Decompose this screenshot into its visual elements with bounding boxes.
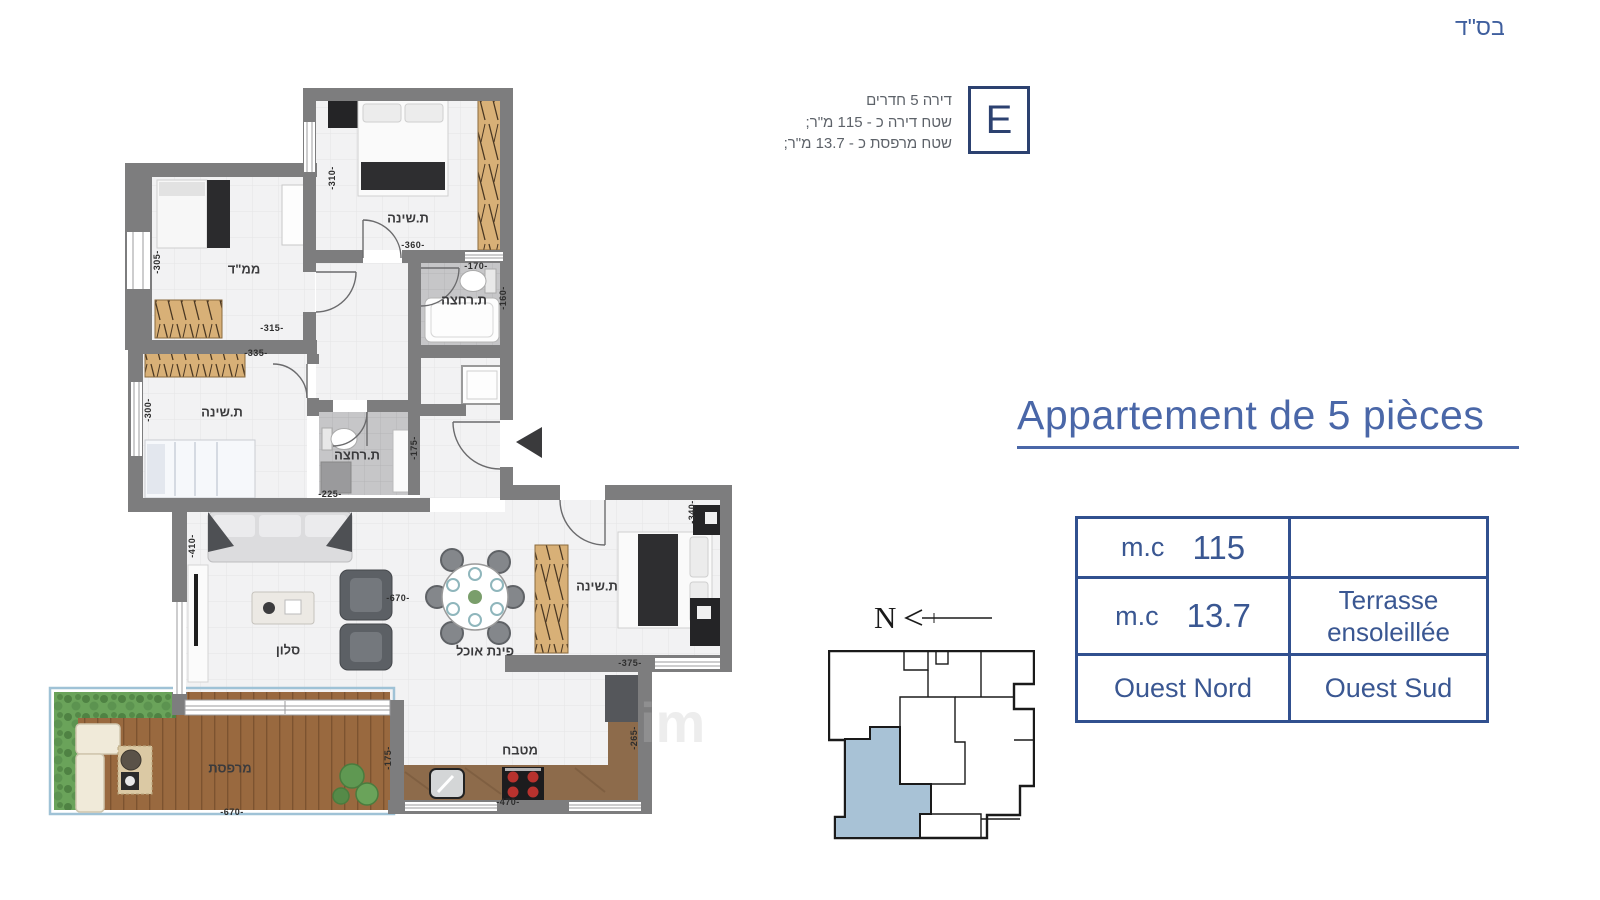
- dim-300: -300-: [143, 398, 153, 422]
- dim-470: -470-: [496, 797, 520, 807]
- building-minimap: [828, 650, 1035, 840]
- dim-340: -340-: [687, 500, 697, 524]
- table-cell-terrace-label: Terrasse ensoleillée: [1291, 579, 1486, 656]
- closet-bedroom2: [145, 352, 245, 377]
- closet-bedroom3: [535, 545, 568, 653]
- coffee-table: [252, 592, 314, 624]
- label-living: סלון: [276, 643, 300, 658]
- dim-410: -410-: [187, 534, 197, 558]
- label-bathroom1: ת.רחצה: [441, 293, 487, 308]
- sink-bathroom2: [393, 430, 410, 492]
- dim-670-living: -670-: [386, 593, 410, 603]
- dim-310: -310-: [327, 166, 337, 190]
- dim-225: -225-: [318, 489, 342, 499]
- sliding-door-terrace: [185, 700, 390, 715]
- dim-160: -160-: [498, 286, 508, 310]
- nightstand-lamp2: [697, 606, 711, 619]
- north-label: N: [874, 600, 896, 636]
- armchairs: [340, 570, 392, 670]
- table-cell-area: m.c 115: [1078, 519, 1291, 579]
- spec-table: m.c 115 m.c 13.7 Terrasse ensoleillée Ou…: [1075, 516, 1489, 723]
- bed-bedroom2: [145, 440, 255, 498]
- watermark: im: [640, 690, 705, 755]
- terrace-hedge-left: [54, 692, 78, 810]
- utility-unit: [462, 366, 502, 404]
- label-terrace: מרפסת: [208, 761, 251, 776]
- tv-unit: [188, 565, 208, 682]
- apartment-letter-badge: E: [968, 86, 1030, 154]
- window-living-west: [173, 602, 186, 694]
- label-bedroom2: ת.שינה: [201, 405, 243, 420]
- terrace-value: 13.7: [1187, 597, 1251, 635]
- window-bathroom1: [465, 252, 503, 261]
- sofa-living: [208, 512, 352, 562]
- window-bedroom3: [655, 658, 720, 669]
- table-cell-orientation-left: Ouest Nord: [1078, 656, 1291, 720]
- entrance-arrow-icon: [516, 427, 542, 458]
- terrace-unit: m.c: [1115, 601, 1159, 632]
- table-cell-empty: [1291, 519, 1486, 579]
- table-cell-orientation-right: Ouest Sud: [1291, 656, 1486, 720]
- label-mamad: ממ"ד: [228, 262, 261, 277]
- label-bedroom3: ת.שינה: [576, 579, 618, 594]
- window-bedroom2: [131, 382, 142, 456]
- entrance-opening: [500, 420, 513, 467]
- window-bedroom1: [304, 122, 315, 172]
- dim-175-entry: -175-: [409, 436, 419, 460]
- table-cell-terrace-area: m.c 13.7: [1078, 579, 1291, 656]
- dim-670-terrace: -670-: [220, 807, 244, 817]
- bsd-text: בס"ד: [1455, 14, 1505, 41]
- dim-265: -265-: [629, 726, 639, 750]
- dim-315: -315-: [260, 323, 284, 333]
- closet-mamad: [155, 300, 222, 338]
- label-bedroom1: ת.שינה: [387, 211, 429, 226]
- dim-175-terrace: -175-: [383, 746, 393, 770]
- compass: N: [870, 598, 1010, 642]
- dim-360: -360-: [401, 240, 425, 250]
- area-unit: m.c: [1121, 532, 1165, 563]
- toilet-bathroom1: [460, 269, 496, 293]
- dim-305: -305-: [152, 250, 162, 274]
- page-root: { "page": { "bsd": "בס\"ד", "watermark":…: [0, 0, 1600, 900]
- label-kitchen: מטבח: [502, 743, 538, 758]
- terrace-rug-table: [118, 746, 152, 794]
- dim-170: -170-: [464, 261, 488, 271]
- dining-set: [426, 549, 524, 644]
- dim-335: -335-: [244, 348, 268, 358]
- window-mamad: [127, 232, 150, 289]
- bed-mamad: [157, 180, 230, 248]
- floor-plan: ת.שינה ממ"ד ת.רחצה ת.שינה ת.רחצה סלון פי…: [45, 82, 737, 848]
- label-bathroom2: ת.רחצה: [334, 448, 380, 463]
- label-dining: פינת אוכל: [456, 644, 514, 659]
- page-title: Appartement de 5 pièces: [1017, 392, 1519, 449]
- window-kitchen-1: [405, 802, 497, 811]
- kitchen-sink: [430, 769, 464, 798]
- nightstand-lamp: [705, 512, 717, 524]
- window-kitchen-2: [569, 802, 641, 811]
- dim-375: -375-: [618, 658, 642, 668]
- area-value: 115: [1192, 529, 1245, 567]
- nightstand-bedroom3-bottom: [690, 598, 720, 646]
